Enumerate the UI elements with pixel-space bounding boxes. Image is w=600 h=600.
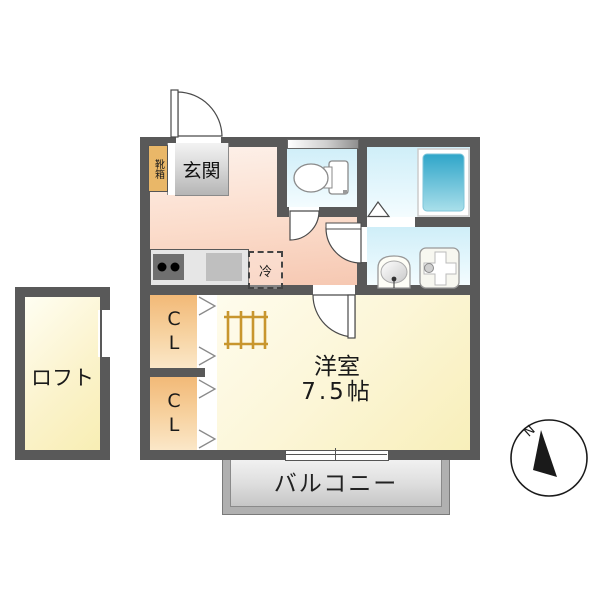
washroom-door-leaf [326, 223, 361, 229]
toilet-flush-handle [343, 190, 347, 194]
entry-door-leaf [171, 90, 178, 137]
closet-lower-label: CL [163, 390, 185, 438]
ladder-icon [224, 311, 268, 349]
closet-upper-label: CL [163, 308, 185, 356]
fixtures-overlay [0, 0, 600, 600]
bathtub [423, 154, 464, 211]
stove-burner-left [158, 263, 167, 272]
toilet-bowl [294, 164, 328, 192]
washer-drain [425, 264, 434, 273]
closet-door-chevrons [199, 297, 215, 448]
main-room-door-leaf [348, 295, 355, 338]
bath-folding-door [368, 202, 389, 217]
stove-burner-right [171, 263, 180, 272]
washroom-door-swing [326, 228, 361, 263]
main-room-size: 7.5帖 [217, 372, 457, 406]
entry-door-swing [178, 92, 222, 136]
toilet-door-swing [290, 211, 319, 240]
floorplan-canvas: バルコニー ロフト 玄関 靴箱 冷 [0, 0, 600, 600]
